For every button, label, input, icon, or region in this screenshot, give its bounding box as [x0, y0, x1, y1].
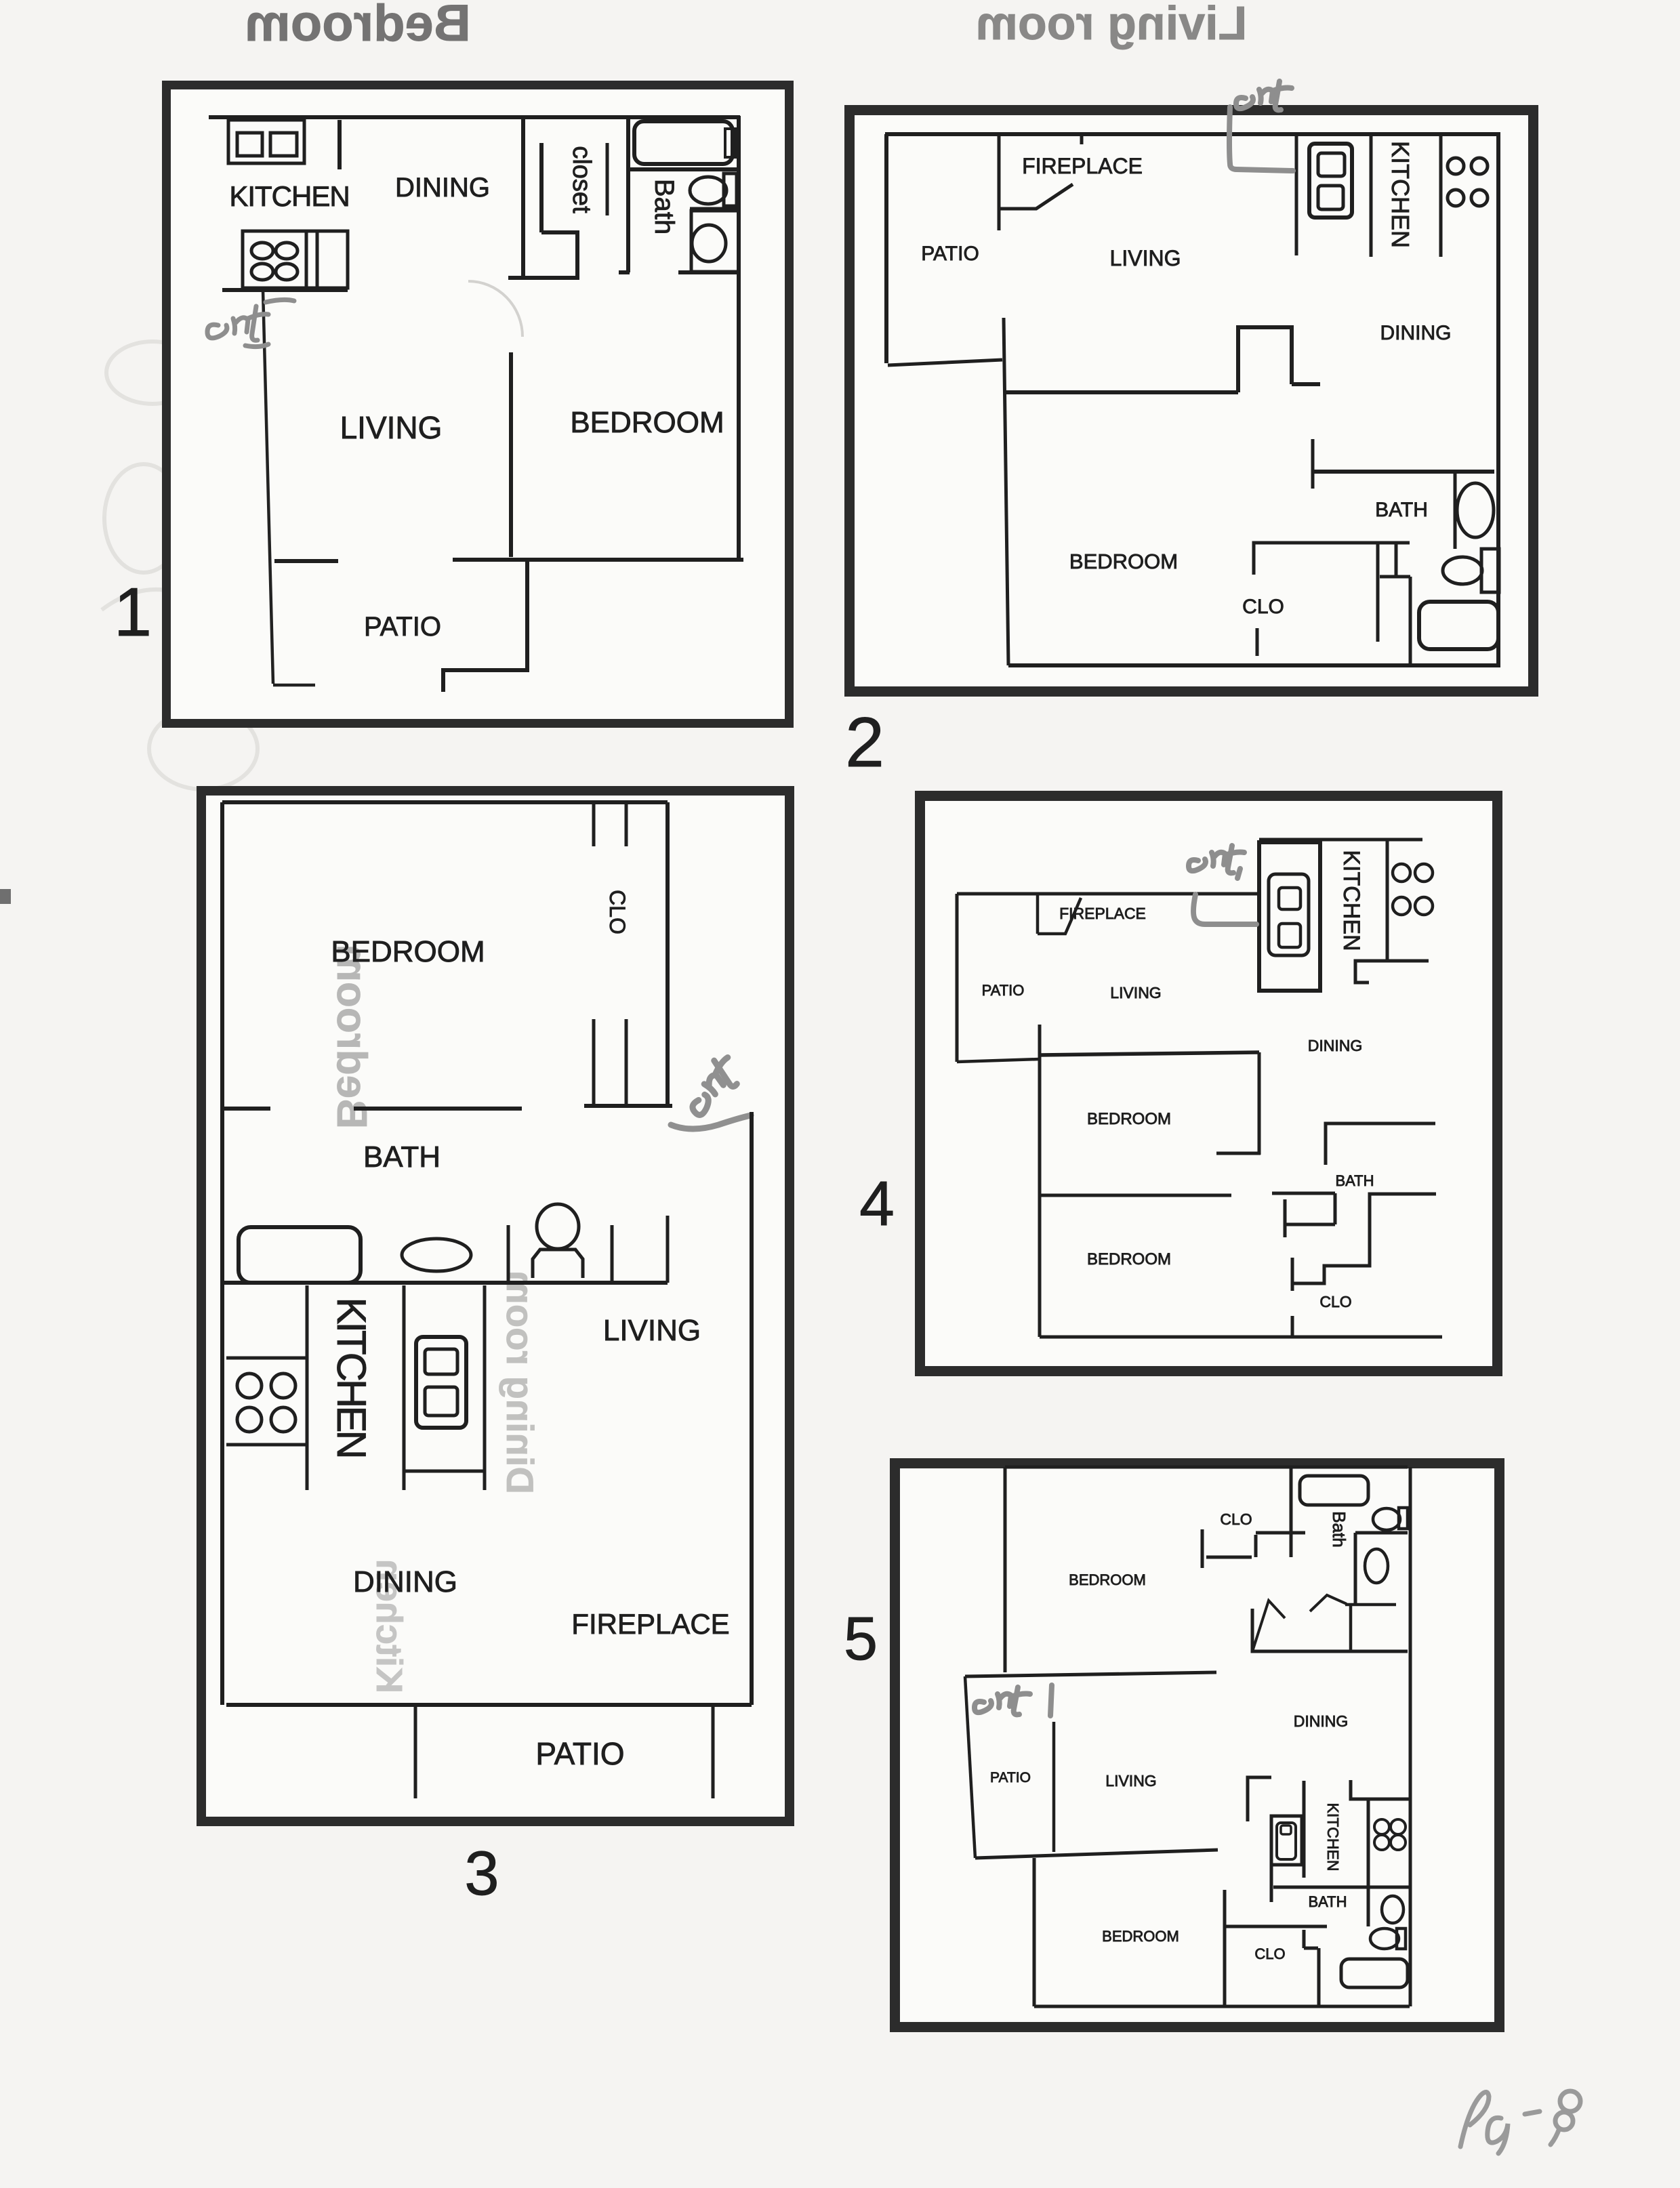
svg-text:2: 2	[845, 703, 884, 782]
svg-text:BEDROOM: BEDROOM	[570, 406, 724, 439]
svg-text:PATIO: PATIO	[982, 982, 1025, 999]
svg-text:KITCHEN: KITCHEN	[1338, 850, 1364, 951]
svg-text:KITCHEN: KITCHEN	[1324, 1803, 1342, 1872]
svg-text:BEDROOM: BEDROOM	[1069, 550, 1178, 573]
svg-text:BEDROOM: BEDROOM	[1087, 1110, 1171, 1128]
svg-text:DINING: DINING	[1380, 322, 1452, 344]
svg-text:Bedroom: Bedroom	[328, 945, 375, 1129]
svg-text:3: 3	[464, 1839, 499, 1908]
svg-text:FIREPLACE: FIREPLACE	[1022, 154, 1143, 178]
svg-text:DINING: DINING	[1294, 1712, 1349, 1730]
svg-text:Bedroom: Bedroom	[245, 0, 471, 52]
svg-text:Living room: Living room	[976, 0, 1248, 49]
svg-text:KITCHEN: KITCHEN	[1387, 141, 1414, 248]
svg-text:CLO: CLO	[1242, 596, 1284, 618]
svg-text:LIVING: LIVING	[340, 410, 443, 445]
svg-text:LIVING: LIVING	[603, 1314, 701, 1347]
svg-text:KITCHEN: KITCHEN	[229, 180, 349, 212]
svg-text:DINING: DINING	[353, 1565, 457, 1598]
svg-text:BEDROOM: BEDROOM	[1087, 1250, 1171, 1268]
svg-text:BATH: BATH	[1308, 1893, 1347, 1910]
svg-text:closet: closet	[567, 146, 596, 213]
svg-text:Bath: Bath	[1329, 1511, 1349, 1548]
svg-text:CLO: CLO	[1220, 1510, 1252, 1528]
svg-text:CLO: CLO	[1319, 1293, 1351, 1310]
svg-text:BEDROOM: BEDROOM	[1102, 1928, 1179, 1945]
svg-text:Dining room: Dining room	[499, 1271, 541, 1494]
svg-text:BEDROOM: BEDROOM	[331, 935, 485, 968]
svg-text:LIVING: LIVING	[1110, 984, 1161, 1002]
svg-text:1: 1	[114, 575, 152, 651]
svg-text:BEDROOM: BEDROOM	[1069, 1571, 1146, 1588]
svg-text:LIVING: LIVING	[1110, 246, 1181, 270]
svg-text:5: 5	[844, 1605, 878, 1673]
svg-text:Bath: Bath	[649, 179, 679, 234]
svg-text:KITCHEN: KITCHEN	[329, 1297, 374, 1456]
svg-text:DINING: DINING	[395, 173, 490, 203]
svg-text:BATH: BATH	[1335, 1172, 1374, 1189]
svg-text:DINING: DINING	[1308, 1037, 1363, 1054]
svg-text:CLO: CLO	[1254, 1945, 1285, 1962]
svg-text:CLO: CLO	[605, 890, 630, 934]
svg-text:BATH: BATH	[363, 1140, 441, 1174]
svg-text:PATIO: PATIO	[990, 1770, 1031, 1786]
svg-text:FIREPLACE: FIREPLACE	[571, 1608, 729, 1640]
svg-text:PATIO: PATIO	[535, 1736, 624, 1771]
svg-text:4: 4	[859, 1168, 895, 1239]
svg-text:FIREPLACE: FIREPLACE	[1059, 905, 1146, 922]
svg-text:LIVING: LIVING	[1105, 1772, 1156, 1790]
svg-text:PATIO: PATIO	[364, 612, 441, 642]
svg-text:BATH: BATH	[1375, 499, 1428, 521]
svg-text:PATIO: PATIO	[921, 243, 979, 265]
